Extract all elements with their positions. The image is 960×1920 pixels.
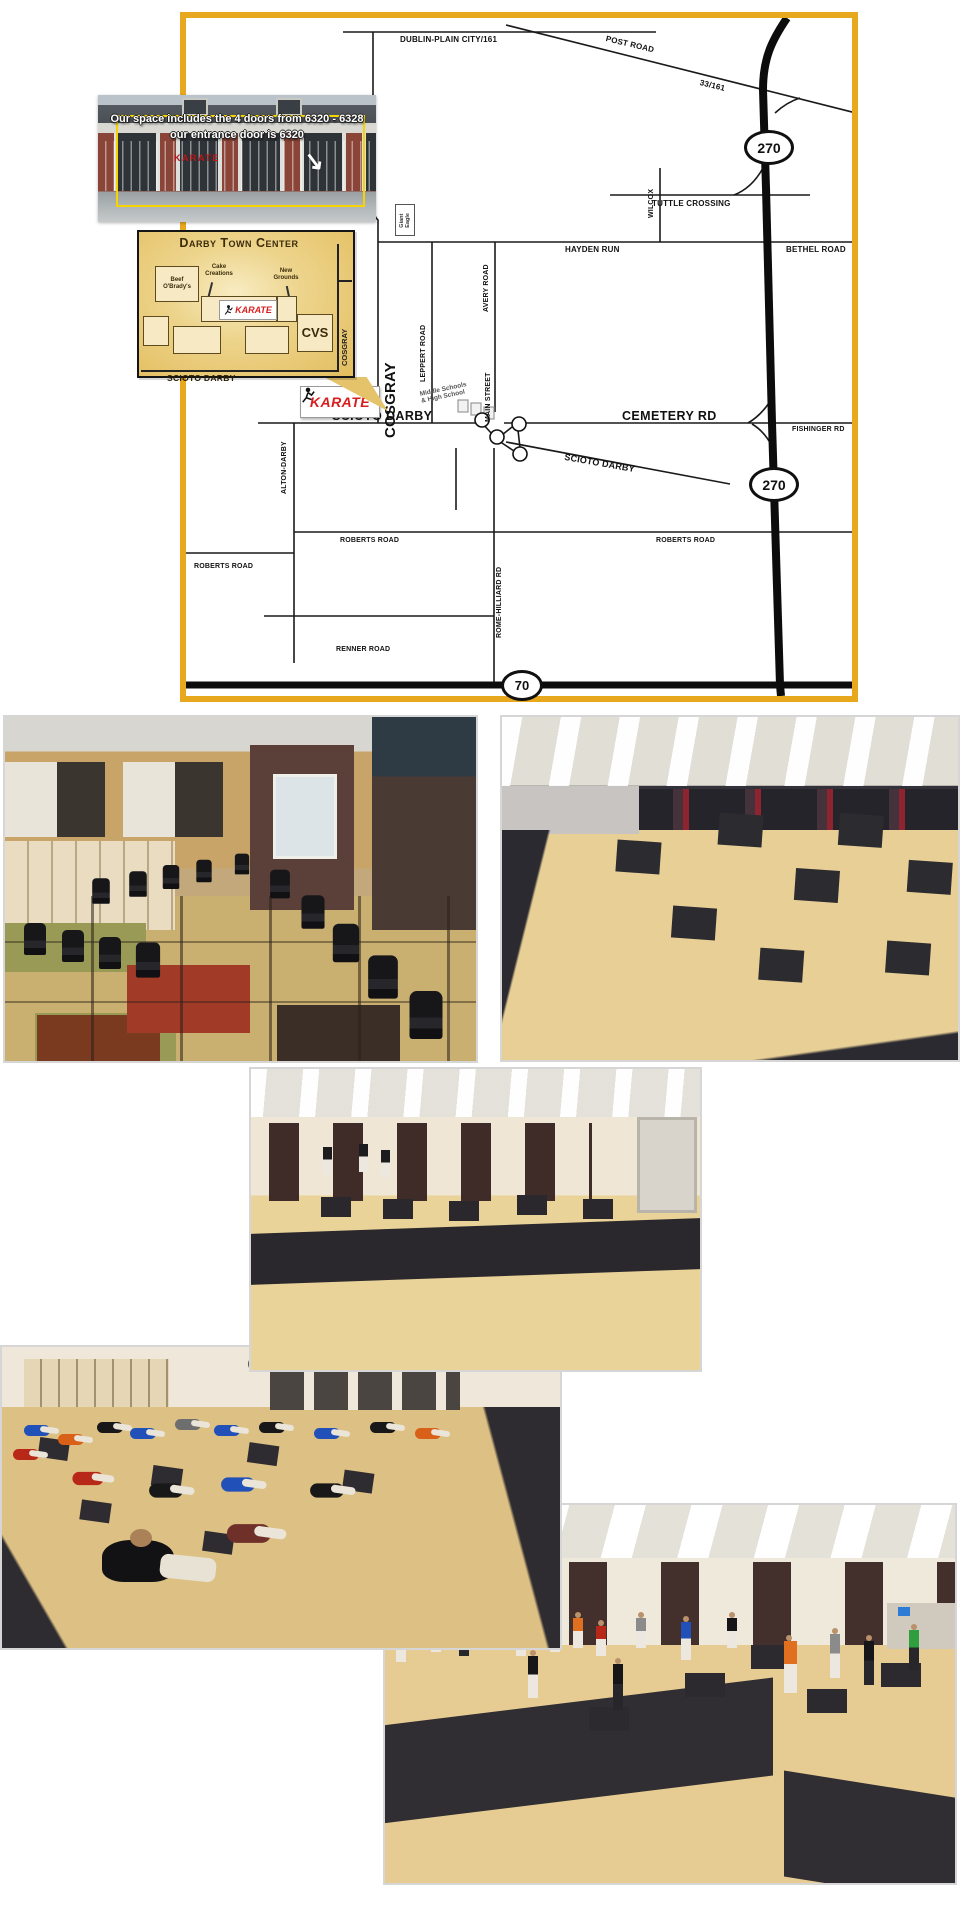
route-shield-270-top: 270	[744, 130, 794, 165]
photo-training-floor	[500, 715, 960, 1062]
school-building	[458, 400, 468, 412]
person-figure	[359, 1144, 368, 1172]
person-figure	[13, 1449, 39, 1460]
person-figure	[149, 1484, 183, 1498]
caption-line-1: Our space includes the 4 doors from 6320…	[98, 113, 376, 125]
monitor-screen	[898, 1607, 910, 1616]
person-figure	[24, 1425, 50, 1436]
road-label-roberts-right: ROBERTS ROAD	[656, 537, 715, 544]
road-label-cemetery: CEMETERY RD	[622, 409, 717, 423]
shield-number: 270	[757, 140, 780, 156]
black-mat-squares	[685, 1673, 725, 1697]
karate-storefront-sign: KARATE	[174, 153, 220, 163]
person-figure	[613, 1664, 623, 1710]
floor-grout	[5, 896, 476, 1061]
tenant-box	[173, 326, 221, 354]
road-label-main-street: MAIN STREET	[485, 366, 492, 422]
tenant-cvs: CVS	[297, 314, 333, 352]
equipment-racks	[639, 789, 958, 830]
lobby-accent-wall	[250, 745, 354, 910]
ceiling-lights	[502, 717, 958, 786]
person-figure	[596, 1626, 606, 1656]
road-label-cosgray-big: COSGRAY	[382, 346, 399, 438]
person-figure	[175, 1419, 201, 1430]
route-shield-70: 70	[501, 670, 543, 701]
road-label-rome-hilliard: ROME-HILLIARD RD	[496, 556, 503, 638]
person-figure	[227, 1524, 271, 1543]
person-figure	[214, 1425, 240, 1436]
inset-karate-label: KARATE	[235, 305, 272, 315]
photo-stretching	[0, 1345, 562, 1650]
person-figure	[72, 1472, 103, 1485]
directions-page: DUBLIN-PLAIN CITY/161 POST ROAD 33/161 C…	[0, 0, 960, 1920]
person-figure	[528, 1656, 538, 1698]
person-figure	[370, 1422, 396, 1433]
inset-karate-sign: KARATE	[219, 300, 277, 320]
caption-line-2: our entrance door is 6320	[98, 129, 376, 141]
black-mat-band	[251, 1218, 700, 1285]
glass-door	[637, 1117, 697, 1213]
route-shield-270-bottom: 270	[749, 467, 799, 502]
person-figure	[58, 1434, 84, 1445]
road-label-dublin: DUBLIN-PLAIN CITY/161	[400, 35, 497, 44]
shield-number: 270	[762, 477, 785, 493]
roundabout	[513, 447, 527, 461]
darby-town-center-inset: Darby Town Center Beef O'Brady's Cake Cr…	[137, 230, 355, 378]
person-figure	[314, 1428, 340, 1439]
chair	[301, 895, 324, 929]
person-figure	[130, 1428, 156, 1439]
back-doorways	[269, 1123, 592, 1201]
roundabout	[490, 430, 504, 444]
road-label-fishinger: FISHINGER RD	[792, 426, 845, 433]
tenant-box	[277, 296, 297, 322]
photo-studio	[249, 1067, 702, 1372]
black-mat-squares	[671, 906, 717, 941]
road-cosgray	[373, 32, 378, 423]
tenant-box	[143, 316, 169, 346]
chair	[62, 930, 84, 962]
person-figure	[415, 1428, 441, 1439]
chair	[332, 924, 358, 962]
karate-figure-icon	[224, 304, 233, 317]
inset-road-tick	[338, 280, 352, 282]
wall-mirror	[502, 786, 639, 834]
road-label-avery: AVERY ROAD	[483, 254, 490, 312]
chair	[369, 956, 399, 999]
person-figure	[259, 1422, 285, 1433]
lobby-mirrors	[5, 762, 241, 838]
chair	[92, 878, 110, 904]
chair	[409, 991, 442, 1039]
inset-cosgray-label: COSGRAY	[340, 308, 349, 366]
ceiling-lights	[251, 1069, 700, 1117]
chair	[270, 870, 290, 899]
shield-number: 70	[515, 678, 529, 693]
road-label-renner: RENNER ROAD	[336, 646, 390, 653]
ramp-post	[775, 98, 800, 113]
cvs-label: CVS	[302, 326, 329, 340]
road-label-leppert: LEPPERT ROAD	[420, 308, 427, 382]
tenant-box	[245, 326, 289, 354]
road-label-roberts-mid: ROBERTS ROAD	[340, 537, 399, 544]
person-figure	[97, 1422, 123, 1433]
black-mat-border	[502, 830, 958, 1060]
person-figure	[830, 1634, 840, 1678]
person-figure-foreground	[102, 1540, 174, 1582]
tenant-label: Beef O'Brady's	[163, 277, 191, 290]
road-label-wilcox: WILCOX	[648, 176, 655, 218]
inset-scioto-label: SCIOTO DARBY	[167, 373, 236, 383]
person-figure	[636, 1618, 646, 1648]
person-figure	[681, 1622, 691, 1660]
back-cubbies	[24, 1359, 169, 1407]
black-mat-band	[784, 1770, 957, 1885]
person-figure	[311, 1484, 345, 1498]
person-figure	[909, 1630, 919, 1670]
person-figure	[864, 1641, 874, 1685]
road-label-roberts-left: ROBERTS ROAD	[194, 563, 253, 570]
ramp-cemetery-a	[748, 403, 769, 423]
person-figure	[221, 1478, 255, 1492]
person-figure	[727, 1618, 737, 1648]
front-desk	[887, 1603, 955, 1648]
ramp-tuttle	[734, 168, 763, 195]
chair	[99, 937, 121, 969]
road-post	[506, 25, 852, 114]
karate-figure-icon	[301, 387, 315, 405]
arrow-icon: ↘	[302, 146, 326, 178]
road-label-bethel: BETHEL ROAD	[786, 245, 846, 254]
road-label-alton: ALTON-DARBY	[281, 430, 288, 494]
black-mat-border	[2, 1407, 560, 1648]
lobby-window	[273, 774, 337, 859]
chair	[130, 872, 148, 898]
chair	[136, 942, 160, 977]
chair	[197, 859, 212, 881]
person-figure	[784, 1641, 797, 1693]
giant-eagle-box: Giant Eagle	[395, 204, 415, 236]
chair	[24, 923, 46, 955]
storefront-photo: Our space includes the 4 doors from 6320…	[98, 95, 376, 222]
road-label-hayden: HAYDEN RUN	[565, 245, 620, 254]
tenant-cake-creations: Cake Creations	[197, 264, 241, 277]
person-figure	[573, 1618, 583, 1648]
highway-270	[763, 18, 787, 696]
person-figure	[381, 1150, 390, 1178]
person-figure	[323, 1147, 332, 1175]
chair	[235, 853, 249, 874]
black-mat-band	[383, 1677, 773, 1824]
inset-cosgray-road	[337, 244, 339, 372]
roundabout	[512, 417, 526, 431]
chair	[163, 865, 180, 889]
road-label-tuttle: TUTTLE CROSSING	[652, 199, 731, 208]
tenant-beef-obradys: Beef O'Brady's	[155, 266, 199, 302]
tenant-new-grounds: New Grounds	[263, 268, 309, 281]
inset-title: Darby Town Center	[139, 236, 339, 250]
photo-lobby	[3, 715, 478, 1063]
giant-eagle-label: Giant Eagle	[399, 213, 411, 228]
black-mat-squares	[321, 1197, 351, 1217]
